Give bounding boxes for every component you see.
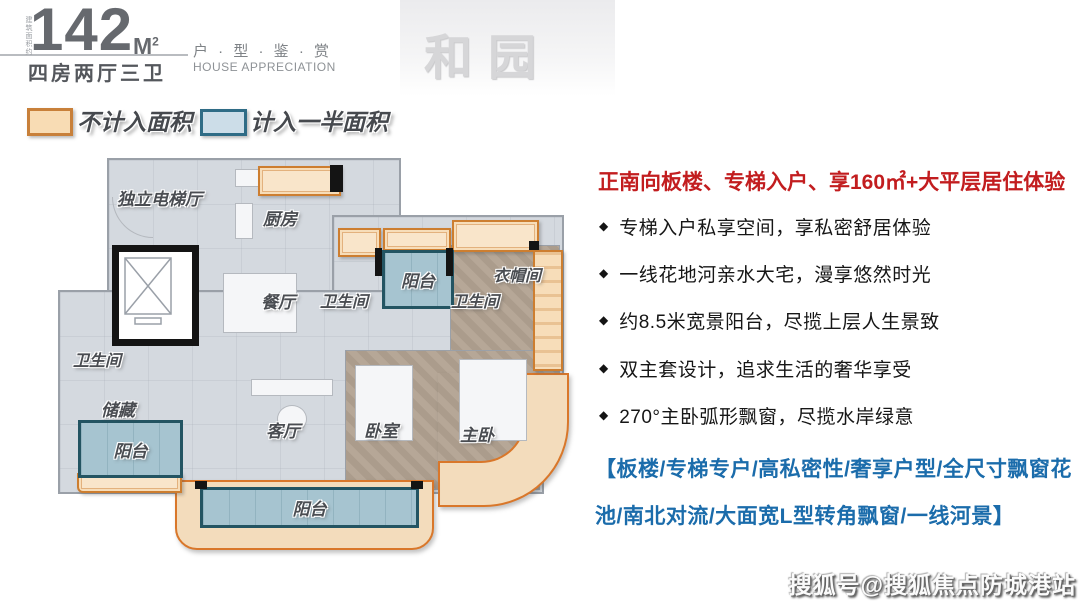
room-label: 阳台 [114, 437, 148, 462]
room-label-master: 主卧 [460, 421, 494, 446]
wall-segment [529, 241, 539, 250]
legend-label-half-counted: 计入一半面积 [250, 103, 388, 137]
area-unit-letter: M [133, 33, 152, 59]
room-label: 阳台 [293, 495, 327, 520]
series-subtitle: HOUSE APPRECIATION [193, 60, 336, 74]
kitchen-stove [235, 203, 253, 239]
bullet-text: 270°主卧弧形飘窗，尽揽水岸绿意 [619, 402, 914, 429]
elevator-x-icon [117, 250, 190, 337]
bullet-text: 专梯入户私享空间，享私密舒居体验 [619, 213, 931, 240]
wall-segment [330, 165, 343, 192]
room-label-bathroom-right: 卫生间 [451, 288, 499, 312]
floor-plan: 阳台 阳台 阳台 独立电梯厅 厨房 餐厅 卫生间 卫生间 衣帽间 卫生间 储藏 … [55, 155, 585, 555]
room-label-storage: 储藏 [101, 396, 135, 421]
room-label-bedroom: 卧室 [364, 417, 398, 442]
wall-segment [195, 481, 207, 489]
wall-segment [411, 481, 423, 489]
sofa [251, 379, 333, 396]
brand-watermark-text: 和园 [424, 18, 552, 88]
bullet-item: ◆ 专梯入户私享空间，享私密舒居体验 [599, 214, 931, 238]
bay-kitchen-top [258, 166, 341, 196]
wall-segment [446, 248, 453, 276]
bay-inner [342, 232, 377, 253]
diamond-bullet-icon: ◆ [599, 219, 608, 233]
balcony-bottom-area: 阳台 [200, 487, 419, 528]
bullet-text: 约8.5米宽景阳台，尽揽上层人生景致 [619, 307, 939, 334]
headline: 正南向板楼、专梯入户、享160㎡+大平层居住体验 [598, 166, 1078, 196]
legend-label-not-counted: 不计入面积 [77, 103, 192, 137]
wall-segment [375, 248, 382, 276]
area-number: 142 [30, 0, 133, 60]
bay-inner [456, 224, 535, 248]
diamond-bullet-icon: ◆ [599, 361, 608, 375]
room-label: 阳台 [401, 267, 435, 292]
feature-tags: 【板楼/专梯专户/高私密性/奢享户型/全尺寸飘窗花 池/南北对流/大面宽L型转角… [595, 446, 1080, 540]
bay-inner [262, 170, 337, 192]
elevator-shaft [112, 245, 199, 346]
room-configuration: 四房两厅三卫 [28, 57, 166, 86]
room-label-elevator-hall: 独立电梯厅 [117, 185, 202, 210]
room-label-bathroom-left: 卫生间 [73, 347, 121, 371]
bullet-text: 双主套设计，追求生活的奢华享受 [619, 355, 912, 382]
room-label-living: 客厅 [266, 417, 300, 442]
legend-swatch-half-counted [200, 109, 247, 136]
poster: 建筑面积约 142 M2 四房两厅三卫 户 · 型 · 鉴 · 赏 HOUSE … [0, 0, 1080, 608]
bullet-item: ◆ 约8.5米宽景阳台，尽揽上层人生景致 [599, 308, 940, 332]
bay-inner [81, 477, 178, 489]
room-label-kitchen: 厨房 [263, 205, 297, 230]
area-unit-sup: 2 [152, 34, 159, 48]
bullet-item: ◆ 双主套设计，追求生活的奢华享受 [599, 356, 912, 380]
legend-swatch-not-counted [27, 108, 73, 136]
area-unit: M2 [133, 33, 159, 60]
diamond-bullet-icon: ◆ [599, 266, 608, 280]
room-label-bathroom-center: 卫生间 [320, 288, 368, 312]
diamond-bullet-icon: ◆ [599, 313, 608, 327]
sohu-watermark: 搜狐号@搜狐焦点防城港站 [789, 566, 1076, 600]
bay-above-top-balcony [383, 228, 451, 251]
feature-tags-line2: 池/南北对流/大面宽L型转角飘窗/一线河景】 [595, 493, 1080, 540]
feature-tags-line1: 【板楼/专梯专户/高私密性/奢享户型/全尺寸飘窗花 [595, 446, 1080, 493]
diamond-bullet-icon: ◆ [599, 408, 608, 422]
bay-right-top [452, 220, 539, 252]
room-label-dining: 餐厅 [261, 288, 295, 313]
bullet-item: ◆ 一线花地河亲水大宅，漫享悠然时光 [599, 261, 931, 285]
bay-inner [387, 232, 447, 247]
series-title: 户 · 型 · 鉴 · 赏 [193, 40, 332, 61]
room-label-cloakroom: 衣帽间 [493, 262, 541, 286]
bullet-item: ◆ 270°主卧弧形飘窗，尽揽水岸绿意 [599, 403, 914, 427]
balcony-top-area: 阳台 [382, 250, 454, 309]
bullet-text: 一线花地河亲水大宅，漫享悠然时光 [619, 260, 931, 287]
balcony-left-area: 阳台 [78, 420, 183, 478]
